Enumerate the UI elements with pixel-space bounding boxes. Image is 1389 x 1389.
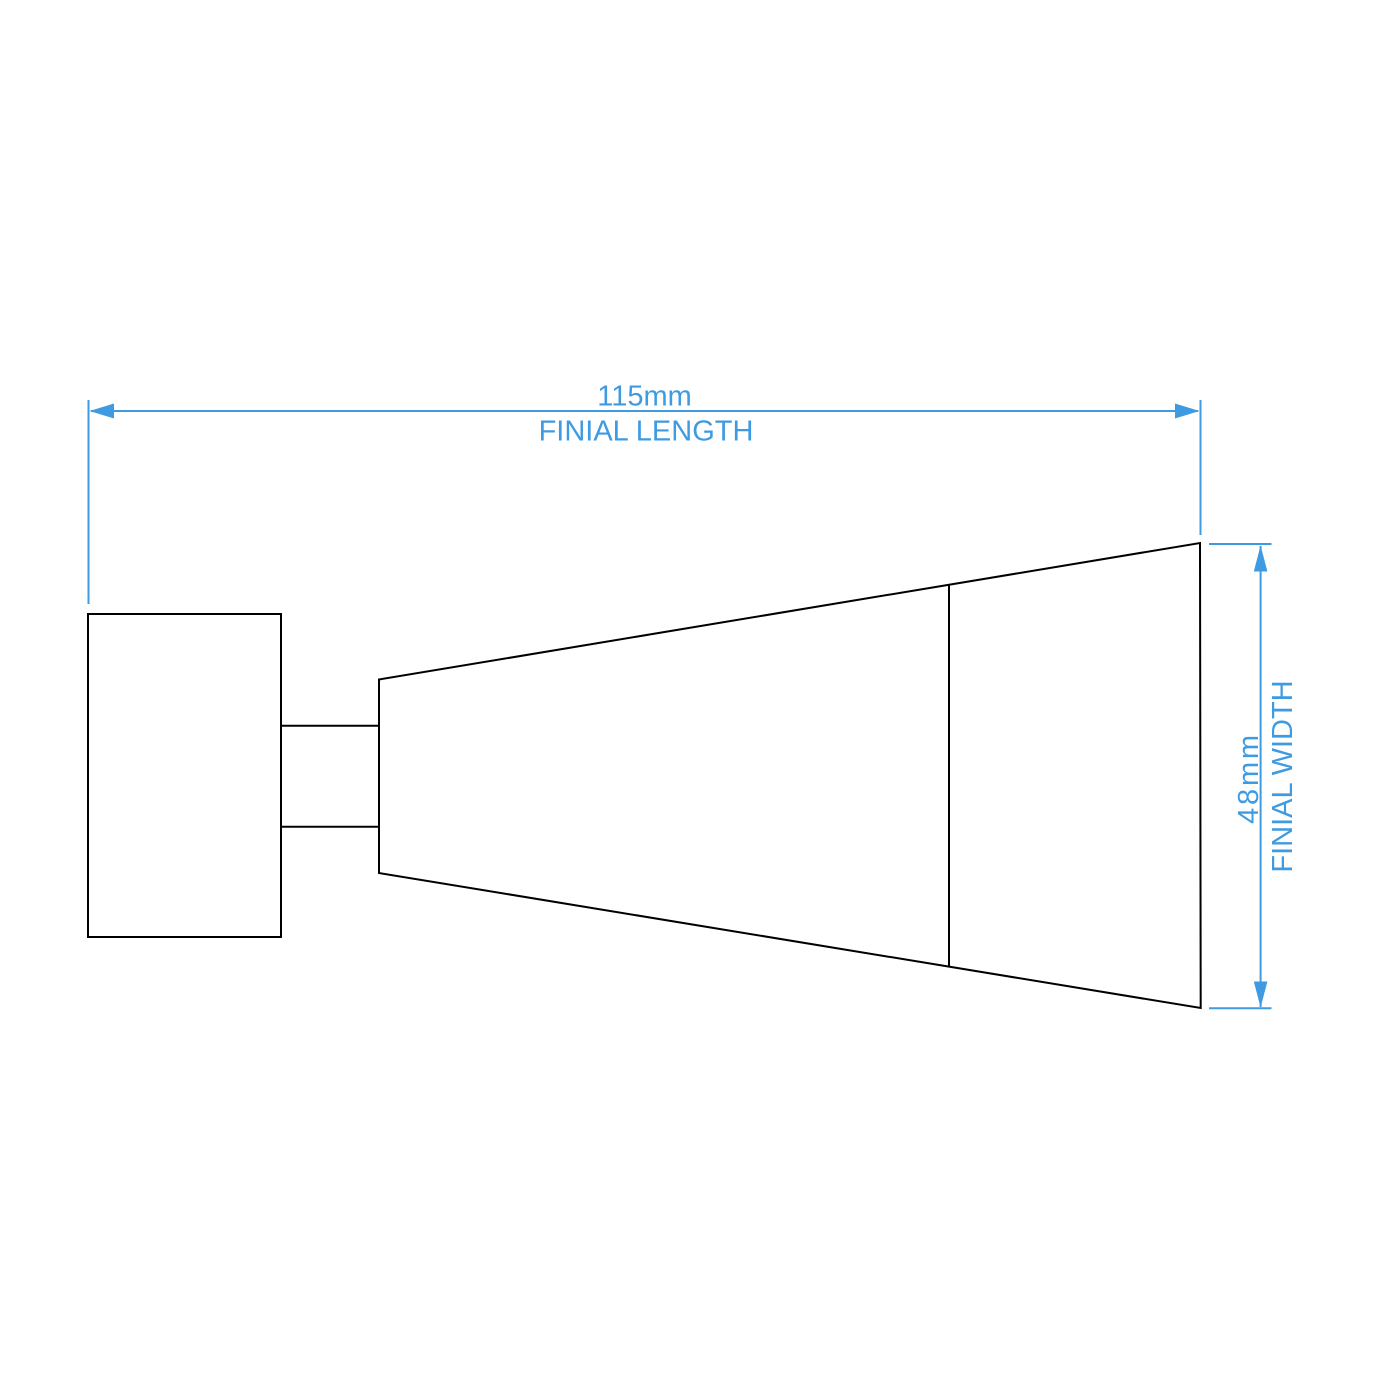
svg-text:115mm: 115mm bbox=[597, 381, 692, 413]
svg-text:FINIAL WIDTH: FINIAL WIDTH bbox=[1267, 680, 1299, 872]
svg-text:FINIAL LENGTH: FINIAL LENGTH bbox=[539, 416, 754, 448]
svg-text:48mm: 48mm bbox=[1233, 732, 1265, 824]
